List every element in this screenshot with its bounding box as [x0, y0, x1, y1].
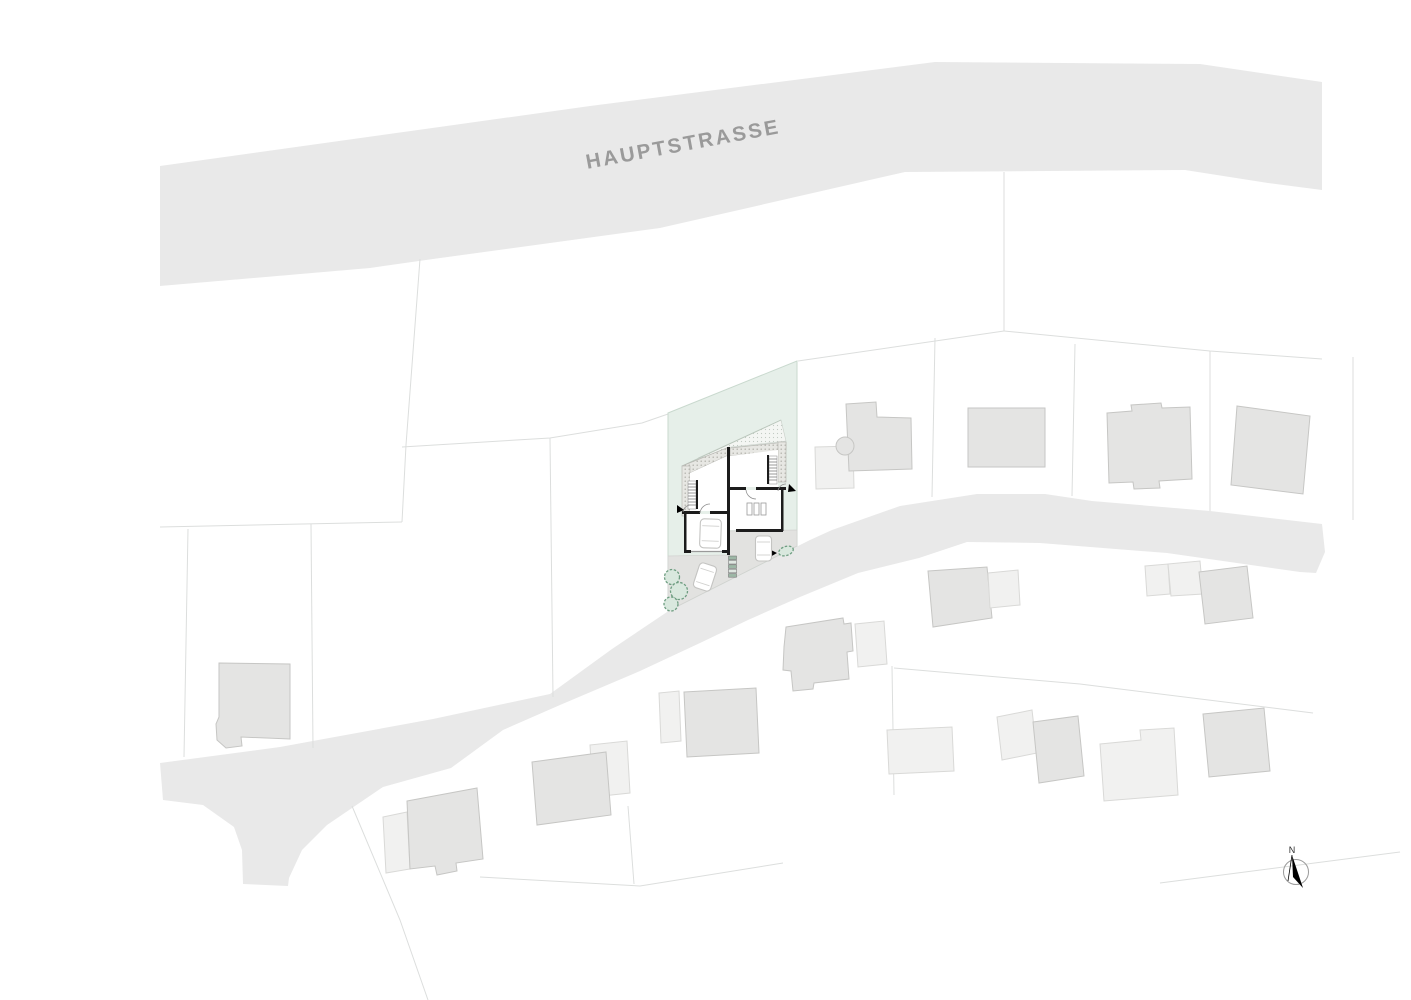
garage-wall [684, 550, 691, 553]
building [684, 688, 759, 757]
site-plan-page: HAUPTSTRASSE N [0, 0, 1411, 1000]
building [1033, 716, 1084, 783]
building [968, 408, 1045, 467]
building-annex [1145, 564, 1170, 596]
west-wall-garage [684, 514, 687, 553]
east-wall-lower [781, 490, 784, 531]
building-annex [659, 691, 681, 743]
interior-wall [710, 511, 727, 514]
staircase-left-unit [688, 480, 698, 509]
building [1203, 708, 1270, 777]
building-annex [988, 570, 1020, 608]
building [1231, 406, 1310, 494]
site-plan-map: HAUPTSTRASSE N [0, 0, 1411, 1000]
car-in-carport [756, 536, 772, 561]
party-wall [727, 447, 730, 555]
exterior-steps [729, 556, 737, 577]
building [1107, 403, 1192, 489]
north-label: N [1289, 845, 1296, 855]
building [887, 727, 954, 774]
interior-wall [730, 487, 746, 490]
garage-wall [722, 550, 728, 553]
building-annex [1168, 561, 1203, 596]
interior-wall [756, 487, 786, 490]
building [783, 618, 853, 691]
fixtures [747, 503, 766, 515]
building [532, 752, 611, 825]
wall-band-east [778, 442, 786, 482]
building-annex [855, 621, 887, 667]
building-bay [836, 437, 854, 455]
car-in-garage [699, 519, 721, 549]
building-annex [997, 710, 1037, 760]
building-annex [383, 812, 410, 873]
building [1199, 566, 1253, 624]
staircase-right-unit [767, 455, 777, 484]
building [928, 567, 992, 627]
building [216, 663, 290, 748]
carport-wall [736, 529, 783, 532]
interior-wall [682, 511, 700, 514]
